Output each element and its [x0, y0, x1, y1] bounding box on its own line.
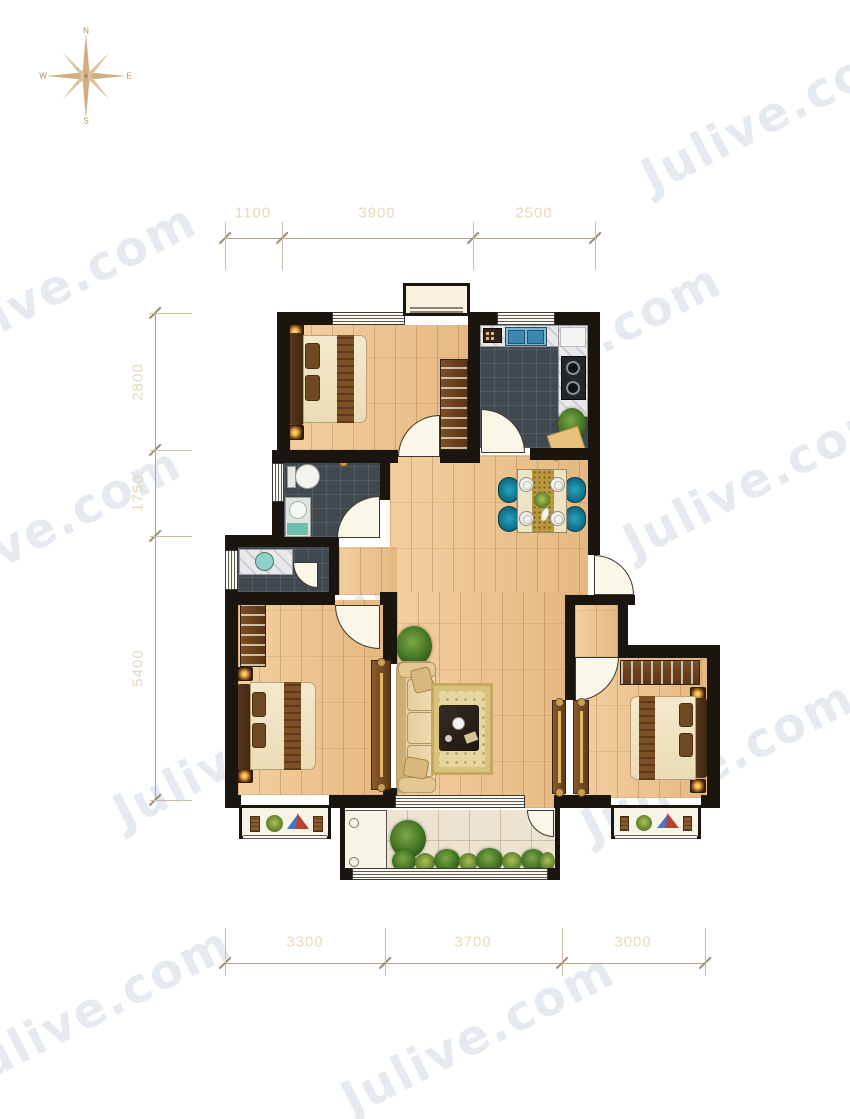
lamp-icon — [238, 770, 251, 782]
dimension-label: 5400 — [130, 649, 147, 686]
window — [243, 833, 327, 839]
bay-window-north — [403, 283, 470, 316]
watermark-text: Julive.com — [614, 385, 850, 570]
dimension-label: 1750 — [130, 474, 147, 511]
compass-south-label: S — [83, 117, 88, 126]
pillow — [252, 692, 266, 717]
extension-line — [385, 928, 386, 976]
dimension-label: 1100 — [235, 205, 271, 222]
shower-unit — [285, 497, 311, 537]
pillow — [679, 703, 693, 727]
alcove-floor — [575, 605, 618, 657]
sliding-door-panel — [371, 660, 391, 790]
window — [615, 833, 697, 839]
watermark-text: Julive.com — [332, 942, 623, 1119]
sliding-door-panel — [552, 700, 566, 794]
bed-runner — [639, 696, 655, 780]
kitchen-appliance — [483, 328, 502, 343]
coffee-table — [439, 705, 479, 751]
balcony-window — [352, 868, 548, 880]
watermark-text: Julive.com — [0, 915, 241, 1100]
plate — [550, 477, 565, 492]
pillow — [679, 733, 693, 757]
balcony-wall — [548, 868, 560, 880]
wall — [530, 448, 592, 460]
bed-runner — [337, 335, 354, 423]
wall — [225, 535, 238, 550]
sink-bowl — [255, 552, 274, 571]
wall — [588, 312, 600, 555]
extension-line — [150, 450, 192, 451]
balcony-wall — [340, 868, 352, 880]
dimension-label: 3700 — [454, 934, 491, 951]
wall — [565, 605, 575, 700]
watermark-text: Julive.com — [632, 19, 850, 204]
plant-icon — [266, 815, 283, 832]
window — [497, 312, 555, 325]
bed-runner — [284, 682, 301, 770]
wall — [618, 645, 720, 658]
sofa-pillow — [402, 756, 429, 780]
extension-line — [225, 222, 226, 270]
extension-line — [150, 800, 192, 801]
compass-east-label: E — [126, 72, 131, 81]
stool — [250, 816, 260, 832]
plate — [519, 511, 534, 526]
compass-rose: N S W E — [38, 25, 134, 125]
lamp-icon — [691, 780, 704, 792]
pillow — [305, 375, 320, 401]
wall — [468, 325, 480, 462]
plate — [519, 477, 534, 492]
window-balcony-door — [395, 795, 525, 808]
floor-plan-page: Julive.com Julive.com Julive.com Julive.… — [0, 0, 850, 1119]
stool — [620, 816, 629, 831]
wall — [468, 312, 497, 325]
bed-headboard — [237, 684, 251, 770]
window — [272, 463, 284, 502]
table-centerpiece-plant — [534, 492, 550, 508]
sailboat-decor-icon — [657, 813, 679, 831]
compass-star-icon — [38, 25, 134, 125]
plant-icon — [396, 626, 432, 666]
extension-line — [562, 928, 563, 976]
compass-north-label: N — [83, 27, 89, 36]
lamp-icon — [288, 426, 302, 439]
kitchen-sink — [505, 327, 547, 346]
stool — [313, 816, 323, 832]
bed-headboard — [289, 333, 304, 425]
dimension-label: 2500 — [515, 205, 552, 222]
watermark-text: Julive.com — [0, 435, 191, 620]
wall — [383, 592, 397, 664]
dining-chair — [564, 506, 586, 532]
kitchen-small-appliance — [560, 327, 586, 347]
wall — [380, 450, 390, 500]
extension-line — [150, 313, 192, 314]
sailboat-decor-icon — [287, 813, 309, 832]
wall — [225, 592, 335, 605]
extension-line — [150, 536, 192, 537]
wardrobe — [440, 359, 468, 450]
wall — [340, 795, 395, 808]
wall — [565, 795, 611, 808]
window — [332, 312, 405, 325]
dimension-label: 3000 — [614, 934, 651, 951]
wall — [277, 312, 290, 463]
extension-line — [705, 928, 706, 976]
cooktop — [561, 356, 586, 400]
sliding-door-panel — [573, 700, 589, 794]
balcony-window-seat — [343, 810, 387, 874]
wall — [329, 537, 339, 595]
plant-icon — [636, 815, 652, 831]
dimension-label: 2800 — [130, 363, 147, 400]
extension-line — [473, 222, 474, 270]
wardrobe — [620, 660, 700, 685]
lamp-icon — [238, 668, 251, 680]
plate — [550, 511, 565, 526]
extension-line — [225, 928, 226, 976]
pillow — [305, 343, 320, 369]
watermark-text: Julive.com — [0, 192, 206, 377]
dimension-line — [155, 313, 156, 800]
extension-line — [282, 222, 283, 270]
window — [225, 550, 238, 590]
dimension-label: 3900 — [358, 205, 395, 222]
entry-door-arc — [594, 555, 634, 595]
toilet — [295, 464, 320, 489]
dimension-line — [225, 963, 705, 964]
stool — [683, 816, 692, 831]
bay-window-southwest — [239, 805, 331, 839]
dining-chair — [564, 477, 586, 503]
compass-west-label: W — [39, 72, 47, 81]
pillow — [252, 723, 266, 748]
wall — [225, 590, 238, 808]
wall — [701, 795, 720, 808]
dimension-label: 3300 — [286, 934, 323, 951]
wardrobe — [240, 599, 266, 667]
bay-window-southeast — [611, 805, 701, 839]
extension-line — [595, 222, 596, 270]
hall-passage-floor — [339, 547, 397, 595]
wall — [707, 645, 720, 808]
